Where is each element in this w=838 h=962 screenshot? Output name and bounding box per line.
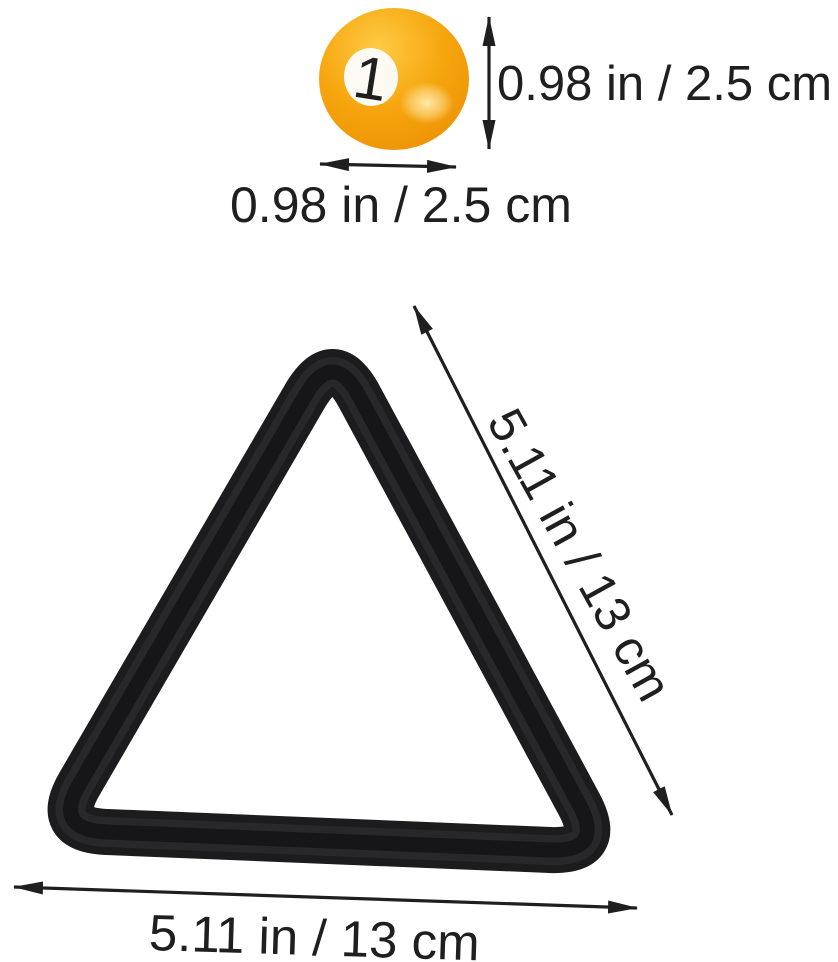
rack-bottom-dimension-arrow-icon — [14, 887, 637, 908]
diagram-canvas: 1 — [0, 0, 838, 962]
ball-width-dimension-arrow-icon — [320, 164, 456, 167]
rack-bottom-label: 5.11 in / 13 cm — [148, 904, 480, 962]
ball-width-label: 0.98 in / 2.5 cm — [230, 176, 572, 234]
ball-highlight — [400, 82, 454, 124]
ball-height-label: 0.98 in / 2.5 cm — [497, 55, 832, 113]
billiard-ball: 1 — [319, 8, 469, 150]
product-dimension-diagram: 1 0.98 in / 2.5 cm 0.98 in / 2.5 cm 5.11… — [0, 0, 838, 962]
